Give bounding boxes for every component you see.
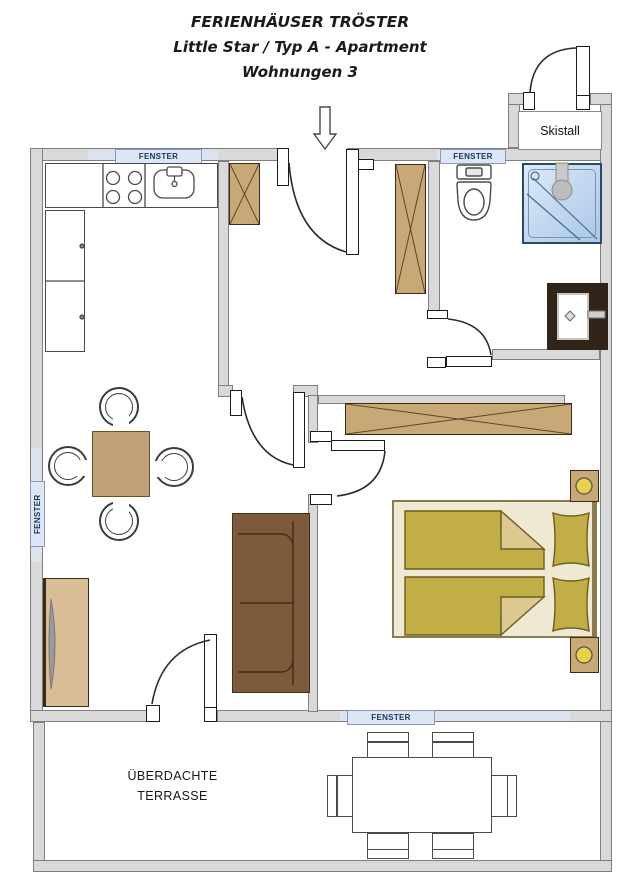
wall-skistall-top-right: [590, 93, 612, 105]
terrace-chair-left: [327, 775, 353, 817]
toilet-flush: [466, 168, 482, 176]
toilet-seat: [464, 189, 484, 215]
toilet-tank: [457, 165, 491, 179]
wardrobe-x-mark: [396, 165, 425, 293]
plan-title-line2: Little Star / Typ A - Apartment: [120, 35, 480, 60]
skistall-door-leaf: [576, 46, 590, 96]
chair-backrest: [336, 776, 338, 816]
skistall-door-arc: [530, 48, 576, 93]
toilet-bowl: [457, 182, 491, 220]
floor-plan: FERIENHÄUSER TRÖSTER Little Star / Typ A…: [0, 0, 635, 892]
terrace-table: [352, 757, 492, 833]
terrace-label-line1: ÜBERDACHTE: [95, 766, 250, 786]
dining-table: [92, 431, 150, 497]
terrace-door-leaf: [204, 634, 217, 708]
bathroom-vanity: [547, 283, 608, 350]
shower-tray: [528, 169, 596, 238]
terrace-label-line2: TERRASSE: [95, 786, 250, 806]
bedroom-door-arc: [337, 451, 385, 496]
skistall-door-jamb-left: [523, 92, 535, 110]
nightstand-top: [570, 470, 599, 502]
entrance-door-leaf: [346, 149, 359, 255]
chair-backrest: [368, 849, 408, 851]
chair-opening: [113, 415, 129, 427]
entrance-door-step: [358, 159, 374, 170]
terrace-chair-top2: [432, 732, 474, 758]
bathroom-door-jamb-top: [427, 310, 448, 319]
dining-chair-top: [99, 387, 139, 427]
sofa: [232, 513, 310, 693]
terrace-chair-bottom2: [432, 833, 474, 859]
arrow-shape: [314, 107, 336, 149]
bathroom-door-arc: [448, 319, 491, 355]
chair-opening: [76, 460, 88, 476]
nightstand-bottom: [570, 637, 599, 673]
living-door-arc: [242, 397, 293, 465]
chair-backrest: [433, 849, 473, 851]
window-label-bathroom: FENSTER: [440, 149, 506, 164]
shower: [522, 163, 602, 244]
living-door-leaf: [293, 392, 305, 468]
double-bed: [392, 500, 597, 638]
bathroom-door-jamb-bottom: [427, 357, 446, 368]
terrace-room-label: ÜBERDACHTE TERRASSE: [95, 766, 250, 806]
wall-bottom-left: [30, 710, 148, 722]
bedroom-door-leaf: [331, 440, 385, 451]
wall-terrace-left: [33, 722, 45, 872]
terrace-door-arc: [152, 640, 210, 704]
plan-title: FERIENHÄUSER TRÖSTER Little Star / Typ A…: [120, 10, 480, 85]
kitchen-counter: [45, 163, 218, 208]
dining-chair-right: [154, 447, 194, 487]
living-door-jamb: [230, 390, 242, 416]
kitchen-tall-cabinet: [45, 210, 85, 352]
chair-opening: [113, 501, 129, 513]
wall-kitchen-hall: [218, 161, 229, 387]
dining-chair-left: [48, 446, 88, 486]
wardrobe-x-mark: [346, 404, 571, 434]
wall-hall-bathroom: [428, 161, 440, 311]
terrace-chair-top1: [367, 732, 409, 758]
chair-backrest: [507, 776, 509, 816]
dining-chair-bottom: [99, 501, 139, 541]
wall-left: [30, 148, 43, 722]
bathroom-door-leaf: [446, 356, 492, 367]
entrance-arrow-icon: [300, 100, 350, 155]
terrace-door-jamb-left: [146, 705, 160, 722]
chair-backrest: [368, 741, 408, 743]
tv-sideboard: [43, 578, 89, 707]
entrance-door-arc: [289, 163, 346, 252]
hall-wardrobe-tall: [395, 164, 426, 294]
skistall-room-label: Skistall: [518, 111, 602, 150]
bedroom-wardrobe: [345, 403, 572, 435]
bedroom-door-jamb-bottom: [310, 494, 332, 505]
chair-backrest: [433, 741, 473, 743]
wall-terrace-bottom: [33, 860, 612, 872]
plan-title-line1: FERIENHÄUSER TRÖSTER: [120, 10, 480, 35]
plan-title-line3: Wohnungen 3: [120, 60, 480, 85]
bedroom-door-jamb-top: [310, 431, 332, 442]
terrace-chair-bottom1: [367, 833, 409, 859]
chair-opening: [154, 461, 166, 477]
vanity-sink: [557, 293, 589, 340]
wardrobe-x-mark: [230, 164, 259, 224]
hall-wardrobe-small: [229, 163, 260, 225]
window-label-bedroom: FENSTER: [347, 710, 435, 725]
window-label-kitchen: FENSTER: [115, 149, 202, 164]
entrance-door-jamb: [277, 148, 289, 186]
wall-bathroom-bottom: [492, 349, 600, 360]
terrace-chair-right: [491, 775, 517, 817]
window-label-living: FENSTER: [30, 481, 45, 547]
